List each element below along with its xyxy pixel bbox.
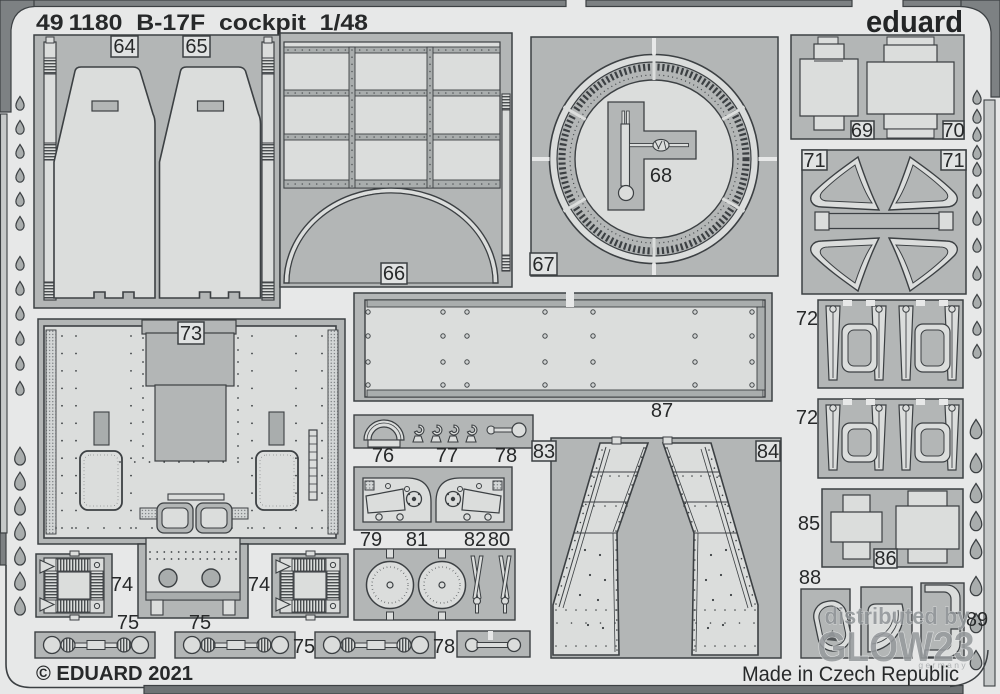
svg-text:70: 70 <box>942 120 964 142</box>
svg-text:83: 83 <box>533 441 555 463</box>
svg-text:80: 80 <box>488 529 510 551</box>
svg-text:81: 81 <box>406 529 428 551</box>
svg-text:76: 76 <box>372 445 394 467</box>
svg-text:67: 67 <box>532 254 554 276</box>
svg-text:68: 68 <box>650 165 672 187</box>
svg-text:64: 64 <box>113 36 135 58</box>
svg-text:75: 75 <box>293 636 315 658</box>
svg-text:84: 84 <box>757 441 779 463</box>
svg-text:g e r m a n y: g e r m a n y <box>918 660 966 670</box>
svg-text:85: 85 <box>798 513 820 535</box>
svg-text:71: 71 <box>803 150 825 172</box>
svg-text:65: 65 <box>185 36 207 58</box>
svg-text:74: 74 <box>248 574 270 596</box>
svg-text:82: 82 <box>464 529 486 551</box>
svg-text:78: 78 <box>433 636 455 658</box>
svg-text:66: 66 <box>383 263 405 285</box>
svg-text:75: 75 <box>189 612 211 634</box>
svg-text:78: 78 <box>495 445 517 467</box>
svg-text:79: 79 <box>360 529 382 551</box>
svg-text:72: 72 <box>796 407 818 429</box>
svg-text:75: 75 <box>117 612 139 634</box>
svg-text:73: 73 <box>180 323 202 345</box>
svg-text:72: 72 <box>796 308 818 330</box>
svg-text:86: 86 <box>874 548 896 570</box>
svg-text:69: 69 <box>851 120 873 142</box>
svg-text:87: 87 <box>651 400 673 422</box>
svg-text:88: 88 <box>799 567 821 589</box>
svg-text:49 1180 B-17F cockpit 1/48: 49 1180 B-17F cockpit 1/48 <box>36 10 368 35</box>
svg-text:© EDUARD 2021: © EDUARD 2021 <box>36 662 193 685</box>
svg-text:77: 77 <box>436 445 458 467</box>
svg-text:74: 74 <box>111 574 133 596</box>
svg-text:eduard: eduard <box>866 4 963 39</box>
svg-text:71: 71 <box>942 150 964 172</box>
